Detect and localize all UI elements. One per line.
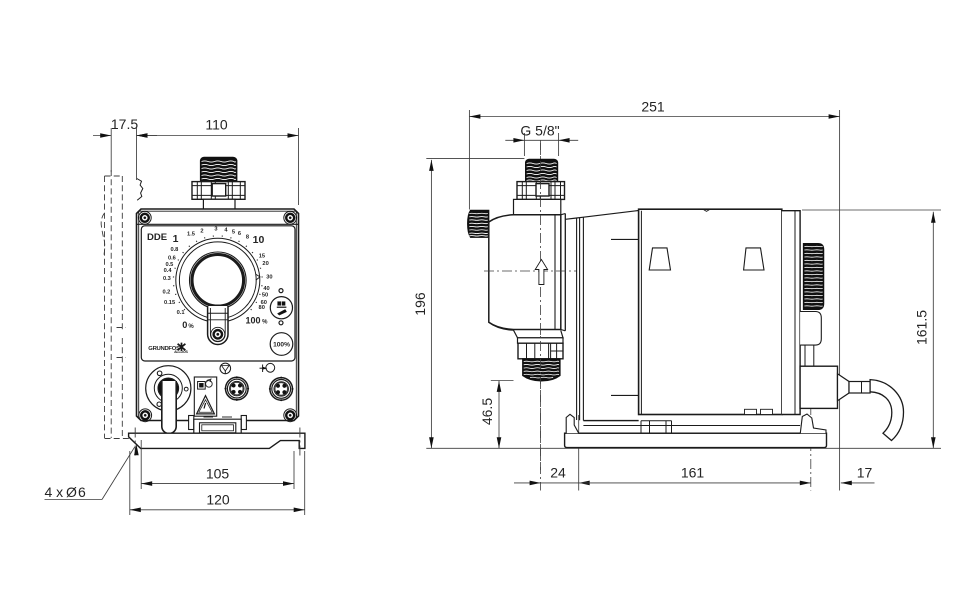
svg-text:105: 105	[206, 465, 230, 481]
svg-text:17.5: 17.5	[111, 116, 138, 132]
svg-text:100%: 100%	[273, 342, 290, 349]
svg-text:17: 17	[857, 465, 873, 481]
svg-text:251: 251	[641, 98, 665, 114]
svg-text:0.15: 0.15	[164, 300, 175, 306]
svg-text:4 x: 4 x	[45, 484, 64, 500]
svg-text:0.1: 0.1	[177, 310, 185, 316]
svg-text:110: 110	[205, 117, 228, 133]
svg-text:120: 120	[206, 492, 230, 508]
svg-text:20: 20	[262, 261, 268, 267]
svg-text:6: 6	[78, 484, 86, 500]
svg-text:DDE: DDE	[147, 232, 167, 243]
svg-text:100: 100	[245, 315, 260, 325]
svg-text:50: 50	[262, 292, 268, 298]
svg-text:6: 6	[238, 231, 241, 237]
svg-text:1: 1	[173, 233, 179, 245]
svg-text:0.5: 0.5	[165, 262, 173, 268]
svg-text:0.8: 0.8	[170, 247, 178, 253]
svg-text:G 5/8": G 5/8"	[520, 122, 559, 138]
svg-text:30: 30	[266, 275, 272, 281]
svg-text:0.3: 0.3	[163, 276, 171, 282]
svg-text:ALLDOS: ALLDOS	[174, 350, 188, 354]
svg-text:196: 196	[412, 292, 428, 316]
svg-text:10: 10	[253, 234, 265, 246]
svg-text:0.4: 0.4	[164, 268, 173, 274]
svg-text:161: 161	[681, 465, 705, 481]
svg-text:0.6: 0.6	[168, 256, 176, 262]
svg-text:%: %	[188, 324, 194, 330]
svg-text:161.5: 161.5	[914, 310, 930, 345]
svg-text:40: 40	[263, 286, 269, 292]
svg-text:0: 0	[182, 320, 187, 330]
svg-text:0.2: 0.2	[162, 290, 170, 296]
svg-text:24: 24	[550, 465, 566, 481]
svg-text:Ø: Ø	[66, 484, 77, 500]
svg-text:5: 5	[232, 230, 235, 236]
svg-text:2: 2	[200, 229, 203, 235]
svg-text:46.5: 46.5	[479, 398, 495, 425]
svg-text:80: 80	[259, 305, 265, 311]
svg-text:1.5: 1.5	[187, 232, 195, 238]
svg-text:8: 8	[246, 235, 249, 241]
svg-text:%: %	[262, 319, 268, 325]
svg-text:3: 3	[214, 227, 217, 233]
svg-text:15: 15	[259, 254, 265, 260]
